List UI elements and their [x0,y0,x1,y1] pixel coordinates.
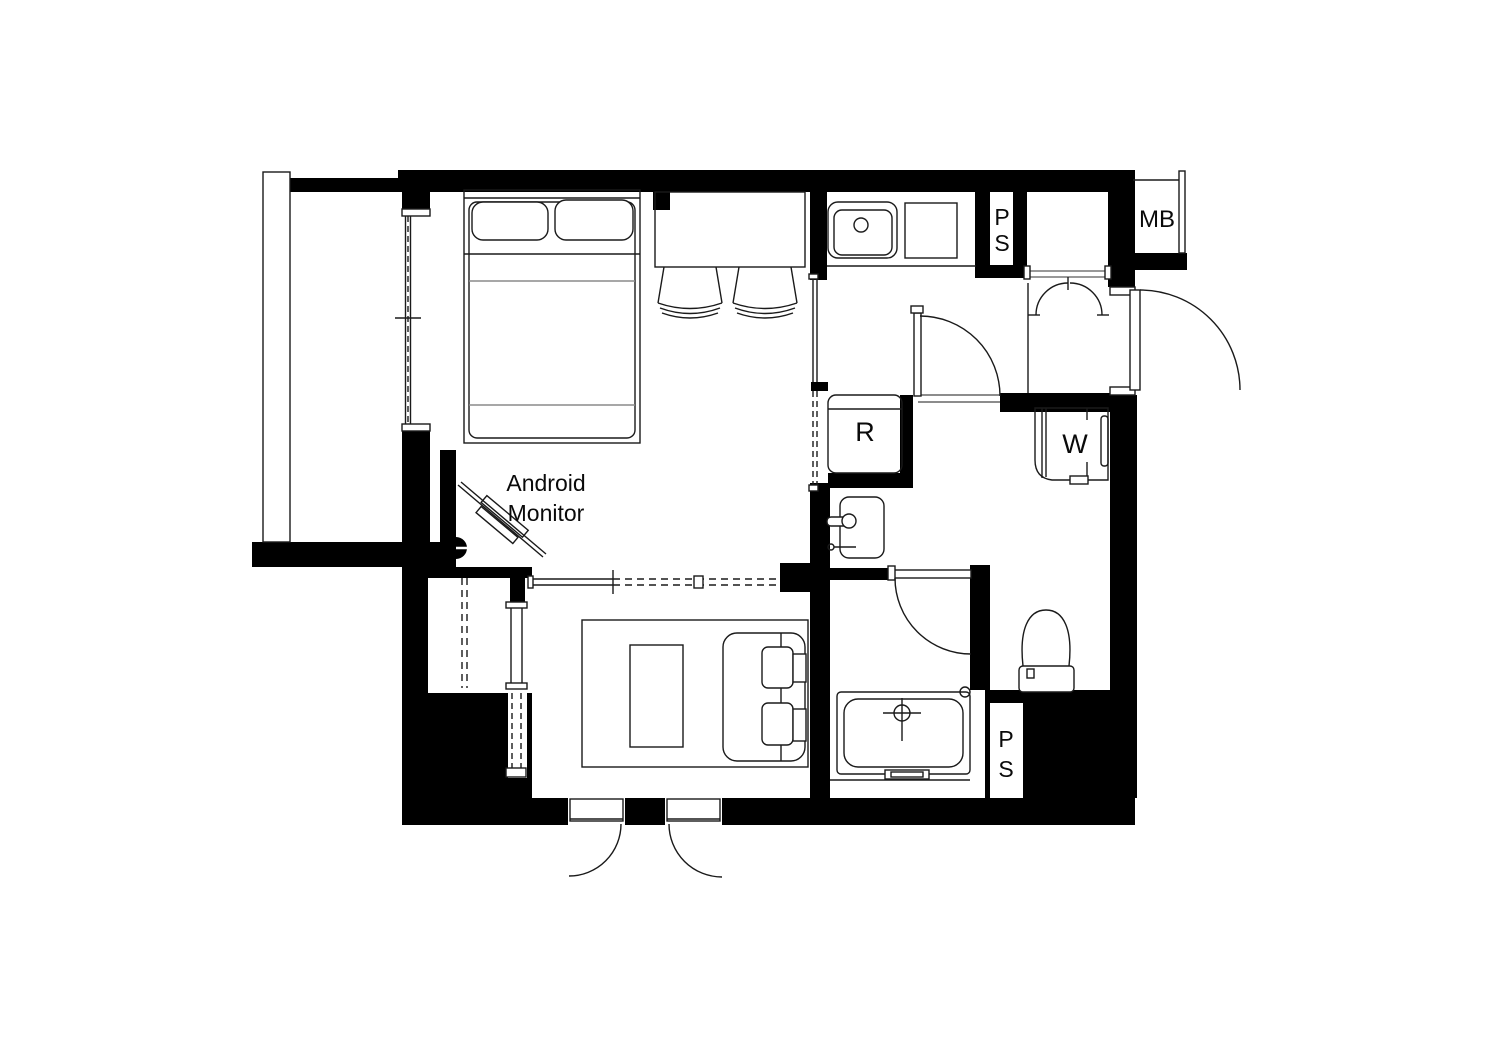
wall-left-of-closet [402,578,428,693]
bathroom-door [888,566,971,654]
double-bed [464,190,640,443]
walls [252,170,1187,825]
stove [905,203,957,258]
wall-top-left-pillar [402,170,430,212]
wall-bath-right [970,565,990,690]
pillow [555,200,633,240]
washroom-door [911,306,1000,402]
wall-mb-bottom [1133,253,1187,270]
wall-partition-stub [780,563,810,592]
sofa-cushion [762,647,793,688]
wall-sanitary-left [810,483,830,798]
pillow [472,202,548,240]
faucet [854,218,868,232]
wall-balcony-top-band [288,178,402,192]
low-table [630,645,683,747]
wall-washroom-top [1000,393,1110,412]
wall-right-upper [1108,190,1135,287]
washbasin [827,497,884,558]
floor-plan: PS MB R W Android Monitor PS [0,0,1500,1060]
doors [569,266,1240,877]
wall-divider-block [811,382,828,391]
label-refrigerator: R [828,417,902,447]
wall-top [398,170,1135,192]
sliding-partition [528,570,778,594]
sofa-cushion [762,703,793,745]
wall-balcony-bottom-band [252,542,456,567]
closet-notch [508,693,527,778]
label-washing-machine: W [1035,429,1115,459]
floor-plan-drawing [0,0,1500,1060]
wall-bottom [402,798,1135,825]
wall-column [456,537,468,559]
bathtub [837,692,970,779]
wall-closet-partition-cap [510,573,525,605]
desk [655,192,805,267]
label-pipe-shaft-top: PS [990,204,1014,256]
wall-ps-top-right [1013,192,1027,265]
balcony-railing [263,172,290,542]
kitchen-sink [828,202,897,258]
entrance-door [1110,287,1240,395]
chair [733,267,797,318]
label-android-monitor: Android Monitor [488,468,604,528]
wall-ps-top-bottom [975,265,1027,278]
label-meter-box: MB [1131,207,1183,233]
entry-closet-doors [1024,266,1111,315]
bedroom-window [395,209,430,431]
label-pipe-shaft-bottom: PS [994,724,1018,784]
wall-bedroom-kitchen-divider [810,192,827,280]
toilet [1019,610,1074,692]
sofa [723,633,806,761]
wall-ps-top-left [975,192,990,273]
wall-fridge-bottom [828,473,913,488]
wall-bath-top-left [820,568,893,580]
chair [658,267,722,318]
